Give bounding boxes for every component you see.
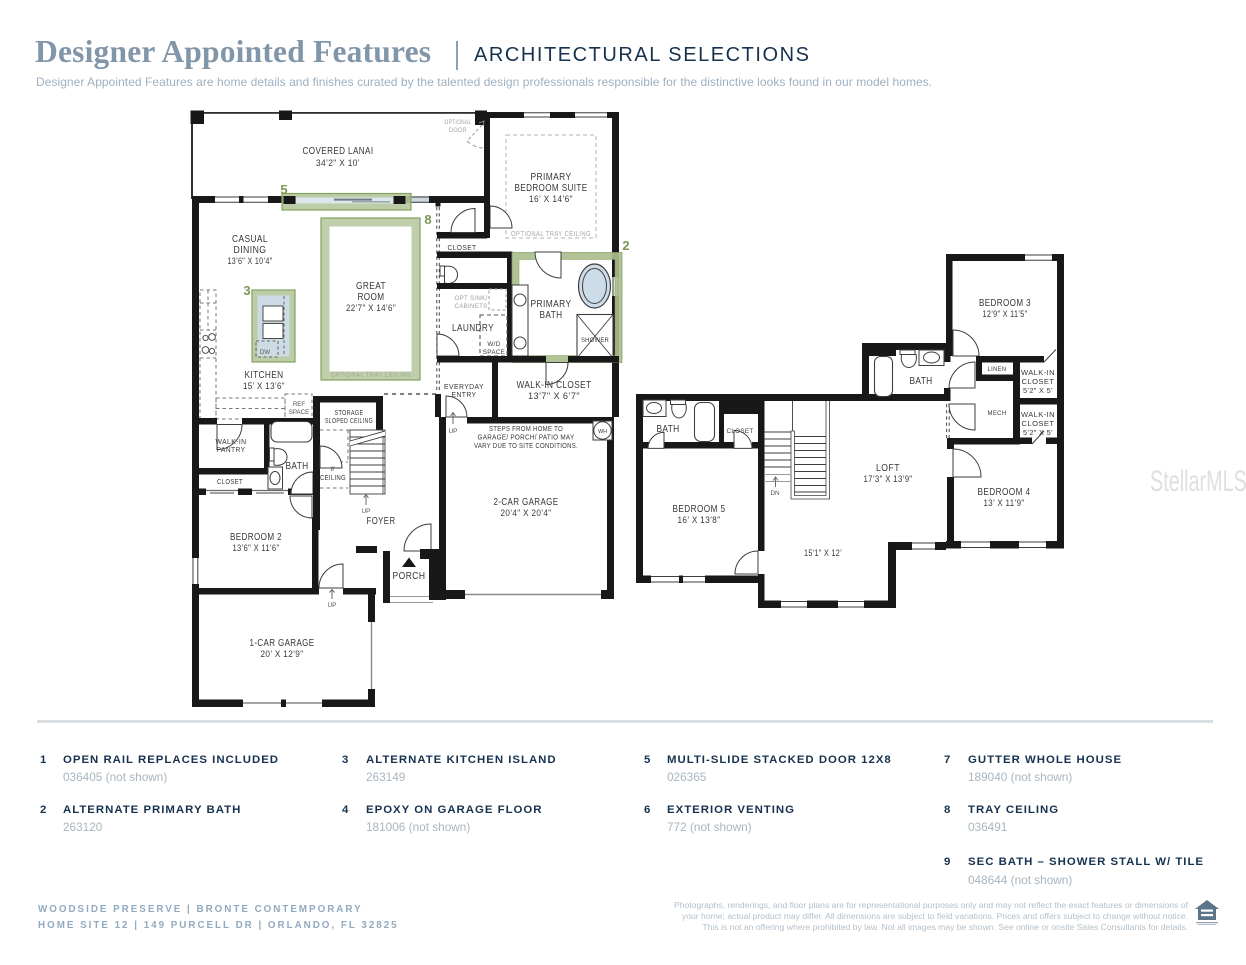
svg-text:ROOM: ROOM [358, 291, 385, 303]
svg-text:LAUNDRY: LAUNDRY [452, 322, 494, 334]
svg-text:REF: REF [293, 401, 306, 408]
svg-text:UP: UP [328, 602, 337, 609]
svg-text:WALK-IN CLOSET: WALK-IN CLOSET [517, 379, 592, 391]
svg-text:DW: DW [260, 349, 270, 356]
svg-text:CLOSET: CLOSET [448, 245, 477, 252]
svg-text:LINEN: LINEN [988, 367, 1007, 373]
svg-text:OPTIONAL TRAY CEILING: OPTIONAL TRAY CEILING [331, 372, 411, 379]
svg-text:BEDROOM 5: BEDROOM 5 [673, 503, 726, 515]
svg-text:CLOSET: CLOSET [727, 429, 754, 435]
svg-text:13’7" X 6’7": 13’7" X 6’7" [528, 391, 580, 401]
svg-text:MECH: MECH [988, 410, 1007, 417]
svg-text:34’2" X 10’: 34’2" X 10’ [316, 158, 360, 168]
svg-text:8’: 8’ [331, 466, 337, 473]
svg-text:20’4" X 20’4": 20’4" X 20’4" [501, 508, 552, 518]
svg-text:LOFT: LOFT [876, 462, 900, 474]
svg-text:SHOWER: SHOWER [581, 338, 609, 344]
svg-text:UP: UP [449, 428, 458, 435]
svg-text:2: 2 [622, 238, 629, 253]
svg-text:8: 8 [424, 212, 431, 227]
svg-text:VARY DUE TO SITE CONDITIONS.: VARY DUE TO SITE CONDITIONS. [474, 443, 578, 450]
svg-text:2-CAR GARAGE: 2-CAR GARAGE [494, 496, 559, 508]
svg-text:BEDROOM 3: BEDROOM 3 [979, 297, 1031, 309]
svg-text:FOYER: FOYER [367, 515, 396, 527]
svg-text:PANTRY: PANTRY [217, 447, 246, 454]
svg-text:BATH: BATH [286, 460, 309, 472]
svg-text:DOOR: DOOR [449, 127, 467, 134]
svg-text:CLOSET: CLOSET [1022, 421, 1055, 428]
svg-text:WALK-IN: WALK-IN [1021, 412, 1055, 419]
svg-text:STEPS FROM HOME TO: STEPS FROM HOME TO [489, 426, 563, 433]
svg-text:EVERYDAY: EVERYDAY [444, 384, 484, 391]
svg-text:WH: WH [598, 429, 607, 435]
svg-text:16’ X 14’6": 16’ X 14’6" [529, 194, 573, 204]
svg-text:UP: UP [362, 508, 371, 515]
svg-text:15’ X 13’6": 15’ X 13’6" [243, 381, 285, 391]
svg-text:CABINETS: CABINETS [455, 303, 488, 310]
svg-text:BEDROOM SUITE: BEDROOM SUITE [515, 182, 588, 194]
svg-text:3: 3 [243, 283, 250, 298]
svg-text:CLOSET: CLOSET [217, 479, 243, 486]
svg-text:15’1" X 12’: 15’1" X 12’ [804, 548, 842, 558]
svg-text:CEILING: CEILING [320, 475, 346, 482]
svg-text:13’6" X 11’6": 13’6" X 11’6" [233, 543, 280, 553]
svg-text:STORAGE: STORAGE [335, 410, 364, 417]
svg-text:KITCHEN: KITCHEN [245, 369, 284, 381]
svg-text:W/D: W/D [487, 341, 500, 348]
svg-text:22’7" X 14’6": 22’7" X 14’6" [346, 303, 396, 313]
svg-text:BATH: BATH [540, 309, 563, 321]
svg-text:BATH: BATH [910, 375, 933, 387]
svg-text:5’2" X 5’: 5’2" X 5’ [1023, 430, 1053, 437]
svg-text:5: 5 [280, 182, 287, 197]
svg-text:OPTIONAL TRAY CEILING: OPTIONAL TRAY CEILING [511, 231, 591, 238]
svg-text:SPACE: SPACE [289, 409, 310, 416]
svg-text:20’ X 12’9": 20’ X 12’9" [261, 649, 304, 659]
svg-text:BEDROOM 4: BEDROOM 4 [978, 486, 1031, 498]
svg-text:12’9" X 11’5": 12’9" X 11’5" [983, 309, 1028, 319]
svg-text:SPACE: SPACE [483, 349, 505, 356]
svg-text:COVERED LANAI: COVERED LANAI [303, 145, 374, 157]
svg-text:GARAGE/ PORCH/ PATIO MAY: GARAGE/ PORCH/ PATIO MAY [478, 435, 575, 442]
svg-text:DN: DN [770, 490, 780, 497]
svg-text:WALK-IN: WALK-IN [1021, 370, 1055, 377]
svg-text:5’2" X 5’: 5’2" X 5’ [1023, 388, 1053, 395]
svg-text:13’ X 11’9": 13’ X 11’9" [984, 498, 1025, 508]
svg-text:16’ X 13’8": 16’ X 13’8" [678, 515, 721, 525]
svg-text:1-CAR GARAGE: 1-CAR GARAGE [250, 637, 315, 649]
svg-text:CLOSET: CLOSET [1022, 379, 1055, 386]
svg-text:DINING: DINING [234, 244, 267, 256]
svg-text:17’3" X 13’9": 17’3" X 13’9" [864, 474, 913, 484]
svg-text:SLOPED CEILING: SLOPED CEILING [325, 418, 373, 425]
svg-text:PORCH: PORCH [393, 570, 426, 582]
svg-text:WALK-IN: WALK-IN [216, 439, 247, 446]
svg-text:OPTIONAL: OPTIONAL [445, 119, 472, 126]
svg-text:OPT SINK/: OPT SINK/ [455, 295, 488, 302]
svg-text:13’6" X 10’4": 13’6" X 10’4" [228, 256, 273, 266]
svg-text:BEDROOM 2: BEDROOM 2 [230, 531, 282, 543]
